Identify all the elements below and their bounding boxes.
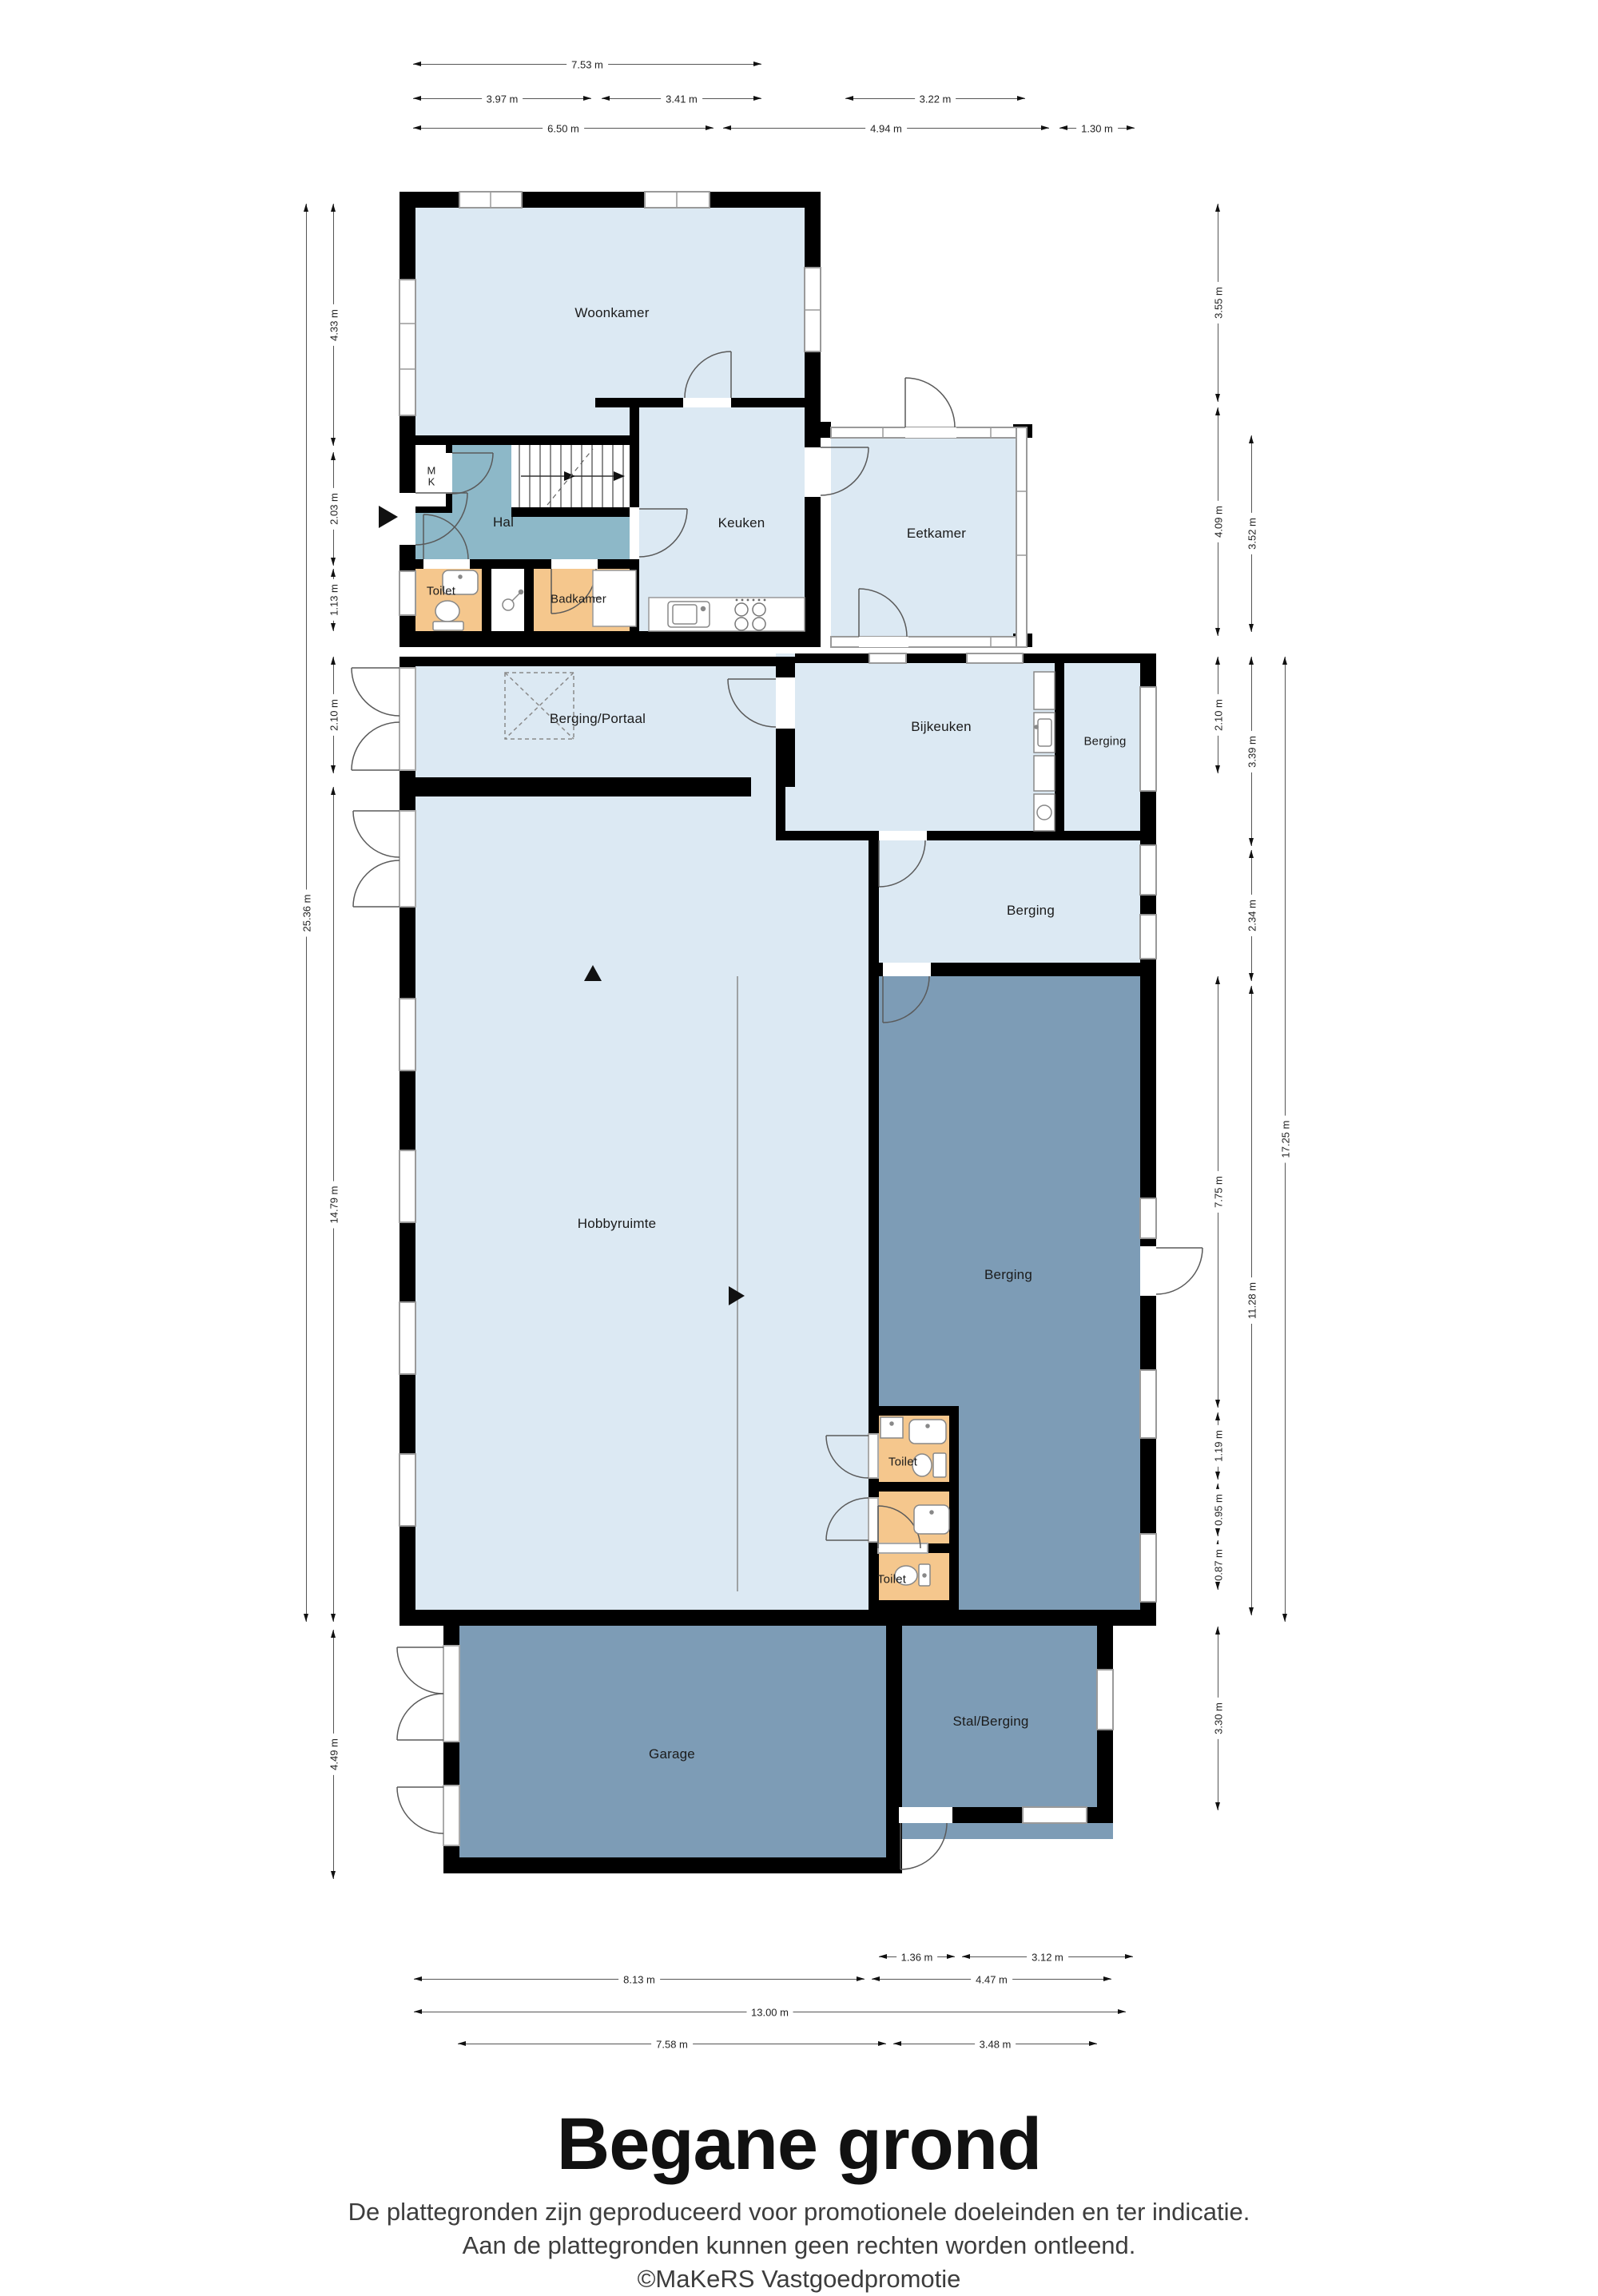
dim-left-433: 4.33 m — [333, 204, 334, 446]
room-label-berging-groot: Berging — [984, 1267, 1032, 1283]
disclaimer-line-1: De plattegronden zijn geproduceerd voor … — [0, 2195, 1598, 2229]
room-label-toilet-achter-1: Toilet — [888, 1456, 917, 1469]
page-title: Begane grond — [0, 2103, 1598, 2187]
hobbyruimte-fill — [399, 787, 879, 1626]
dim-top-397: 3.97 m — [413, 98, 591, 99]
room-label-badkamer: Badkamer — [551, 593, 606, 606]
cabinet — [1034, 756, 1055, 791]
window — [1140, 1534, 1156, 1602]
room-label-woonkamer: Woonkamer — [574, 305, 649, 321]
room-label-garage: Garage — [649, 1746, 695, 1762]
dim-right-1725: 17.25 m — [1285, 657, 1286, 1622]
dim-left-210: 2.10 m — [333, 657, 334, 773]
dim-right-352: 3.52 m — [1251, 435, 1252, 632]
dim-right-087: 0.87 m — [1218, 1540, 1218, 1590]
disclaimer-line-2: Aan de plattegronden kunnen geen rechten… — [0, 2229, 1598, 2262]
dim-right-095: 0.95 m — [1218, 1484, 1218, 1536]
room-label-keuken: Keuken — [718, 515, 765, 531]
dim-bottom-136: 1.36 m — [879, 1956, 955, 1957]
window — [399, 1302, 415, 1374]
washbasin — [914, 1505, 949, 1534]
dim-top-341: 3.41 m — [602, 98, 761, 99]
fountain-sink — [880, 1417, 903, 1438]
floorplan-graphic — [0, 0, 1598, 2261]
window — [399, 1454, 415, 1526]
dim-top-322: 3.22 m — [845, 98, 1025, 99]
garage-fill — [443, 1610, 902, 1873]
window — [1140, 1198, 1156, 1238]
room-label-stal-berging: Stal/Berging — [952, 1714, 1028, 1730]
window — [869, 653, 906, 663]
dim-right-234: 2.34 m — [1251, 850, 1252, 981]
window — [399, 280, 415, 415]
room-label-berging-midden: Berging — [1007, 903, 1055, 919]
dim-bottom-447: 4.47 m — [872, 1979, 1111, 1980]
dim-top-130: 1.30 m — [1059, 128, 1135, 129]
dim-right-409: 4.09 m — [1218, 407, 1218, 636]
dim-bottom-758: 7.58 m — [458, 2044, 886, 2044]
disclaimer: De plattegronden zijn geproduceerd voor … — [0, 2195, 1598, 2296]
dim-right-330: 3.30 m — [1218, 1627, 1218, 1810]
dim-right-1128: 11.28 m — [1251, 986, 1252, 1615]
window — [1097, 1670, 1113, 1730]
window — [1140, 1370, 1156, 1438]
dim-left-113: 1.13 m — [333, 569, 334, 631]
washbasin — [909, 1420, 946, 1444]
room-label-hal: Hal — [493, 514, 514, 530]
floorplan-canvas: Woonkamer MK Hal Keuken Eetkamer Toilet … — [0, 0, 1598, 2261]
cabinet — [1034, 672, 1055, 709]
dim-bottom-312: 3.12 m — [962, 1956, 1133, 1957]
room-label-berging-klein: Berging — [1083, 735, 1126, 749]
dim-bottom-1300: 13.00 m — [414, 2012, 1126, 2012]
copyright: ©MaKeRS Vastgoedpromotie — [0, 2262, 1598, 2296]
window — [1140, 915, 1156, 959]
dim-left-449: 4.49 m — [333, 1630, 334, 1879]
window — [1023, 1807, 1087, 1823]
room-label-hobbyruimte: Hobbyruimte — [578, 1216, 657, 1232]
window — [967, 653, 1023, 663]
room-label-bijkeuken: Bijkeuken — [911, 719, 972, 735]
dim-left-1479: 14.79 m — [333, 787, 334, 1622]
dim-bottom-348: 3.48 m — [893, 2044, 1097, 2044]
window — [399, 999, 415, 1071]
dim-left-203: 2.03 m — [333, 452, 334, 566]
dim-right-119: 1.19 m — [1218, 1412, 1218, 1480]
entrance-arrow — [379, 506, 398, 528]
wc — [435, 601, 459, 622]
dim-right-339: 3.39 m — [1251, 657, 1252, 846]
room-label-meterkast: MK — [427, 466, 436, 489]
room-label-toilet-achter-2: Toilet — [877, 1573, 906, 1587]
window — [399, 1150, 415, 1222]
room-label-toilet-voor: Toilet — [427, 585, 455, 598]
dim-right-210: 2.10 m — [1218, 657, 1218, 773]
room-label-eetkamer: Eetkamer — [907, 526, 966, 542]
window — [1140, 687, 1156, 791]
dim-right-775: 7.75 m — [1218, 976, 1218, 1408]
stairs-fill — [511, 435, 630, 507]
dim-top-494: 4.94 m — [723, 128, 1049, 129]
dim-bottom-813: 8.13 m — [414, 1979, 865, 1980]
dim-top-650: 6.50 m — [413, 128, 714, 129]
shower-head — [503, 599, 514, 610]
dim-top-753: 7.53 m — [413, 64, 761, 65]
dim-right-355: 3.55 m — [1218, 204, 1218, 402]
dim-left-2536: 25.36 m — [306, 204, 307, 1622]
room-label-berging-portaal: Berging/Portaal — [550, 711, 646, 727]
window — [1140, 845, 1156, 895]
window — [399, 571, 415, 615]
